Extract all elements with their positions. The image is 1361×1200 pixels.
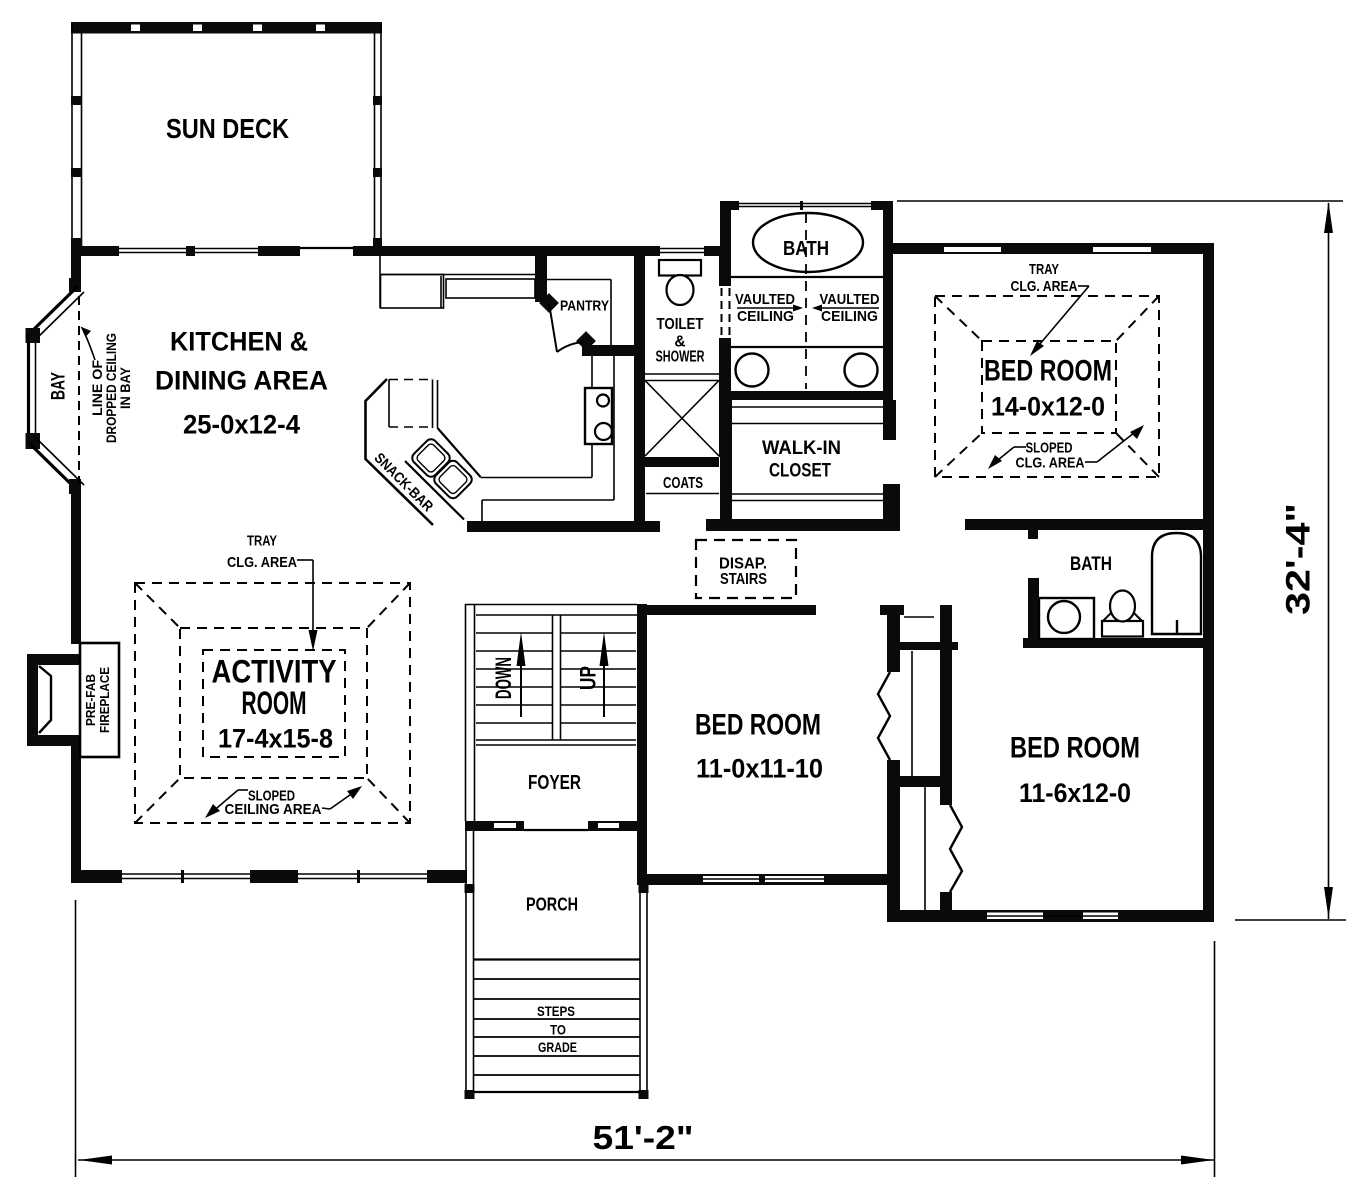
- svg-text:DINING AREA: DINING AREA: [155, 366, 328, 396]
- svg-text:PORCH: PORCH: [526, 894, 578, 914]
- svg-text:BED ROOM: BED ROOM: [1010, 732, 1140, 765]
- svg-text:CEILING: CEILING: [821, 308, 878, 325]
- svg-text:KITCHEN &: KITCHEN &: [170, 327, 308, 357]
- svg-text:SHOWER: SHOWER: [656, 349, 705, 366]
- svg-text:TO: TO: [550, 1022, 566, 1038]
- svg-text:VAULTED: VAULTED: [735, 291, 795, 308]
- svg-text:BED ROOM: BED ROOM: [695, 709, 821, 742]
- svg-text:25-0x12-4: 25-0x12-4: [183, 410, 300, 440]
- svg-text:DOWN: DOWN: [491, 657, 516, 699]
- svg-text:ROOM: ROOM: [242, 685, 307, 721]
- svg-text:FOYER: FOYER: [528, 772, 581, 794]
- svg-text:CEILING AREA: CEILING AREA: [225, 801, 322, 818]
- svg-text:LINE OF: LINE OF: [90, 360, 105, 416]
- svg-text:11-6x12-0: 11-6x12-0: [1019, 778, 1131, 808]
- svg-text:SUN DECK: SUN DECK: [166, 113, 289, 144]
- svg-text:DISAP.: DISAP.: [719, 556, 767, 573]
- svg-text:BED ROOM: BED ROOM: [984, 355, 1112, 388]
- svg-text:32'-4": 32'-4": [1280, 503, 1318, 615]
- svg-text:STEPS: STEPS: [537, 1003, 575, 1019]
- svg-text:CLG. AREA: CLG. AREA: [1016, 454, 1085, 471]
- svg-text:FIREPLACE: FIREPLACE: [97, 667, 112, 733]
- svg-text:COATS: COATS: [663, 475, 703, 492]
- svg-text:BATH: BATH: [1070, 554, 1112, 575]
- svg-text:PANTRY: PANTRY: [560, 297, 609, 314]
- svg-text:WALK-IN: WALK-IN: [762, 438, 841, 459]
- svg-text:TRAY: TRAY: [247, 532, 277, 549]
- svg-text:PRE-FAB: PRE-FAB: [83, 674, 98, 726]
- svg-text:51'-2": 51'-2": [593, 1119, 694, 1156]
- svg-text:BATH: BATH: [783, 238, 829, 260]
- svg-text:UP: UP: [575, 666, 600, 690]
- svg-text:BAY: BAY: [49, 372, 70, 400]
- svg-text:TOILET: TOILET: [657, 316, 704, 333]
- svg-text:17-4x15-8: 17-4x15-8: [218, 724, 333, 754]
- svg-text:11-0x11-10: 11-0x11-10: [696, 754, 823, 784]
- svg-text:DROPPED CEILING: DROPPED CEILING: [104, 333, 119, 443]
- svg-text:TRAY: TRAY: [1029, 261, 1059, 278]
- svg-text:CLG. AREA: CLG. AREA: [227, 554, 297, 571]
- svg-text:STAIRS: STAIRS: [720, 571, 767, 588]
- svg-text:CLOSET: CLOSET: [769, 461, 831, 482]
- svg-text:IN BAY: IN BAY: [118, 367, 133, 409]
- svg-text:14-0x12-0: 14-0x12-0: [991, 392, 1105, 422]
- svg-text:CEILING: CEILING: [737, 308, 794, 325]
- svg-text:CLG. AREA: CLG. AREA: [1011, 278, 1078, 295]
- svg-text:GRADE: GRADE: [538, 1039, 577, 1055]
- svg-text:VAULTED: VAULTED: [820, 291, 880, 308]
